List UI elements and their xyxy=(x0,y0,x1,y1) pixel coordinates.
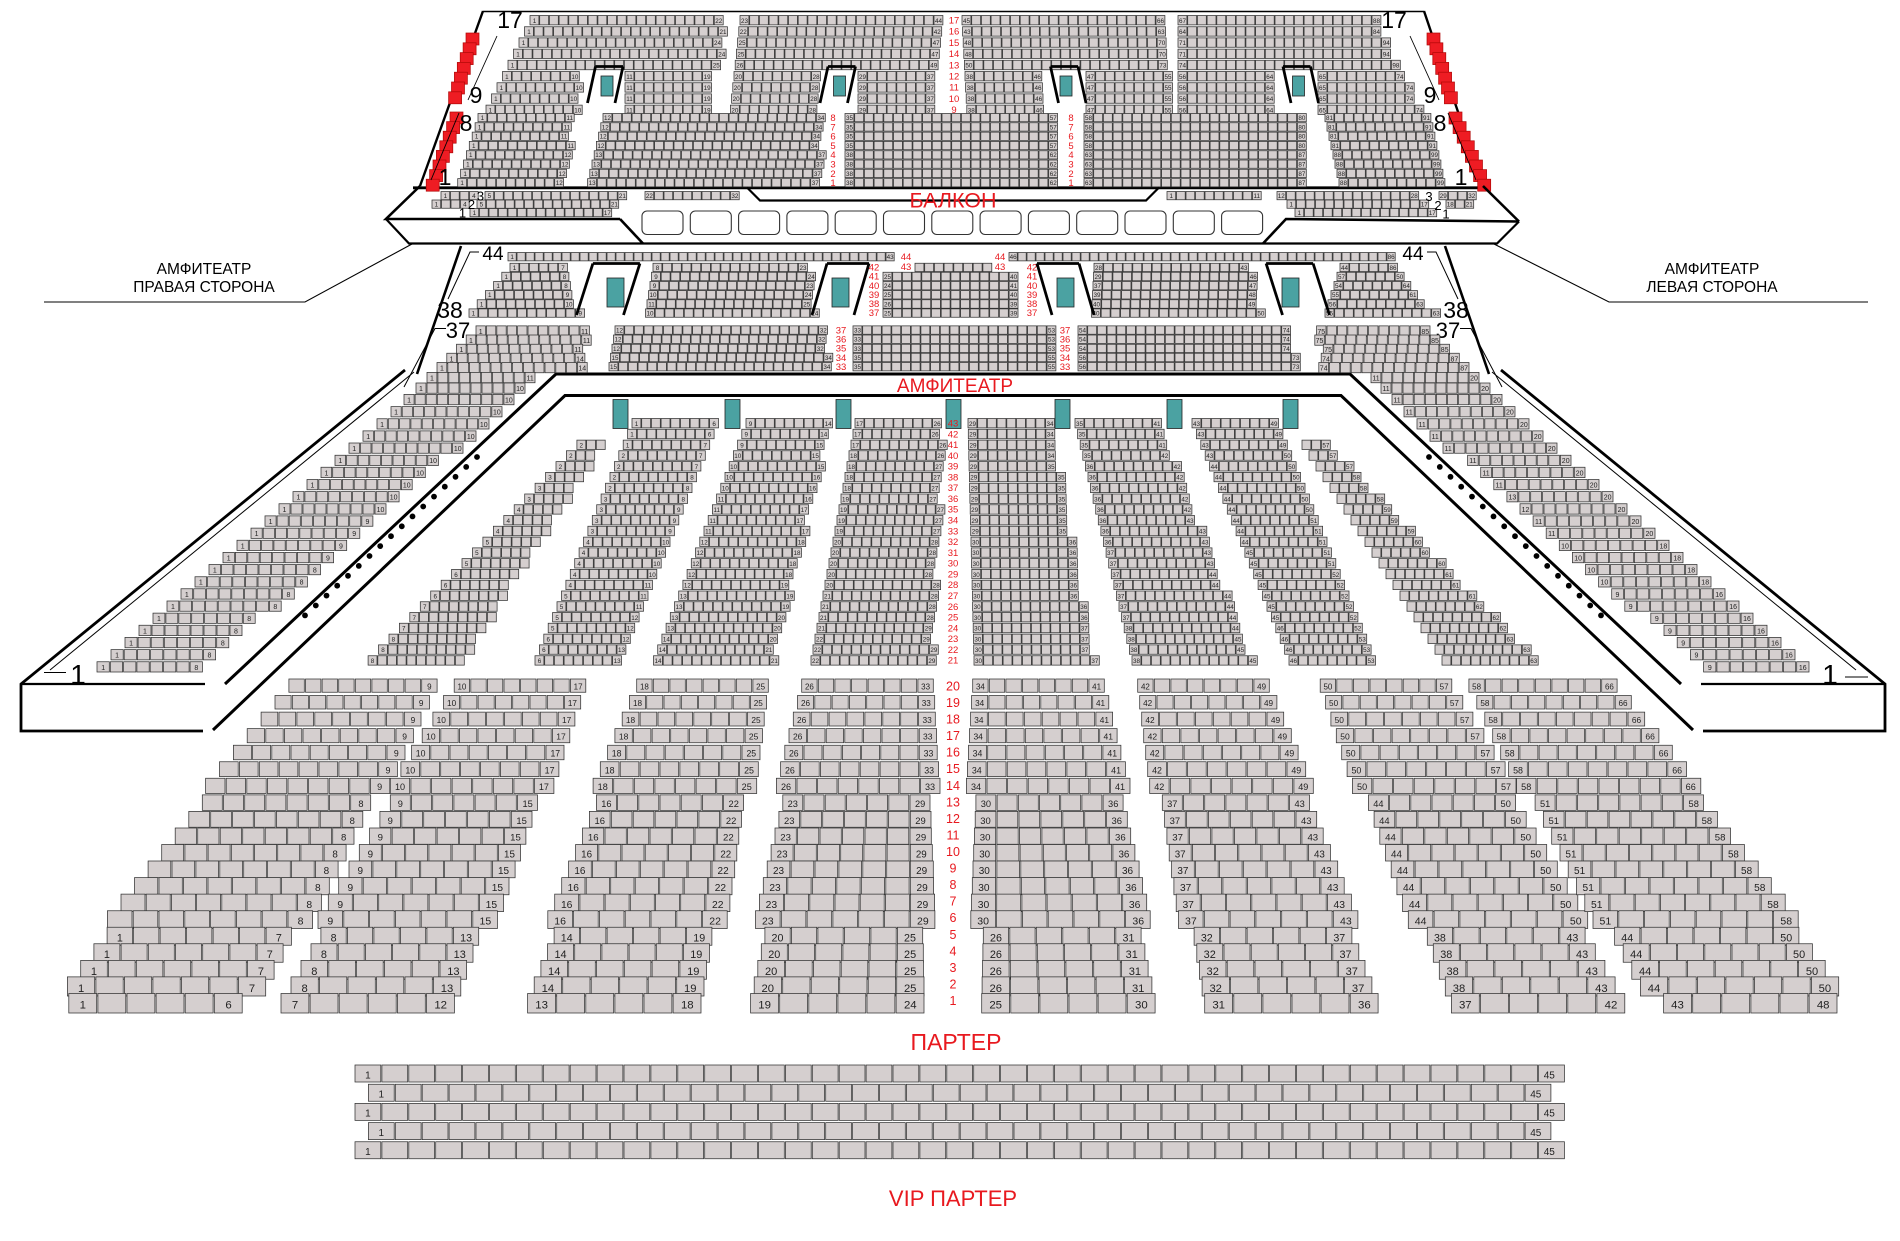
svg-text:41: 41 xyxy=(948,440,959,451)
svg-text:14: 14 xyxy=(825,421,833,428)
svg-text:9: 9 xyxy=(398,799,403,809)
svg-text:33: 33 xyxy=(923,732,933,742)
svg-text:29: 29 xyxy=(859,85,867,92)
svg-text:44: 44 xyxy=(1341,265,1349,272)
svg-text:50: 50 xyxy=(1396,274,1404,281)
svg-text:20: 20 xyxy=(1618,507,1626,514)
svg-text:43: 43 xyxy=(1193,421,1201,428)
svg-text:33: 33 xyxy=(924,749,934,759)
svg-text:20: 20 xyxy=(1548,446,1556,453)
svg-text:12: 12 xyxy=(613,346,621,353)
svg-text:46: 46 xyxy=(1035,96,1043,103)
svg-text:36: 36 xyxy=(1122,866,1134,877)
svg-text:29: 29 xyxy=(972,529,980,536)
svg-text:13: 13 xyxy=(1509,495,1517,502)
svg-text:81: 81 xyxy=(1332,143,1340,150)
svg-text:42: 42 xyxy=(1605,1000,1618,1012)
svg-text:60: 60 xyxy=(1438,561,1446,568)
svg-text:9: 9 xyxy=(377,782,382,792)
svg-text:37: 37 xyxy=(1333,932,1345,944)
svg-text:14: 14 xyxy=(542,983,555,995)
svg-text:53: 53 xyxy=(1367,658,1375,665)
svg-text:11: 11 xyxy=(1419,422,1426,429)
svg-text:37: 37 xyxy=(1167,799,1177,809)
svg-text:16: 16 xyxy=(805,496,813,503)
svg-text:91: 91 xyxy=(1423,115,1431,122)
svg-text:75: 75 xyxy=(1316,338,1324,345)
svg-text:34: 34 xyxy=(817,115,825,122)
svg-text:9: 9 xyxy=(386,765,391,775)
svg-text:43: 43 xyxy=(1301,815,1311,826)
svg-text:45: 45 xyxy=(1272,615,1280,622)
svg-text:53: 53 xyxy=(1048,337,1056,344)
svg-text:64: 64 xyxy=(1403,283,1411,290)
svg-text:25: 25 xyxy=(737,51,745,58)
svg-text:41: 41 xyxy=(1115,782,1125,792)
svg-text:43: 43 xyxy=(901,262,912,273)
svg-text:15: 15 xyxy=(611,355,619,362)
svg-text:50: 50 xyxy=(1501,799,1511,809)
svg-text:9: 9 xyxy=(347,883,353,894)
svg-text:6: 6 xyxy=(542,647,546,654)
svg-text:16: 16 xyxy=(581,849,592,860)
svg-text:52: 52 xyxy=(1354,626,1362,633)
svg-text:15: 15 xyxy=(946,762,960,776)
svg-text:11: 11 xyxy=(636,604,643,611)
svg-text:11: 11 xyxy=(1254,193,1261,200)
svg-text:30: 30 xyxy=(975,647,983,654)
svg-text:51: 51 xyxy=(1540,799,1550,809)
svg-text:42: 42 xyxy=(1161,453,1169,460)
svg-text:10: 10 xyxy=(730,464,738,471)
svg-text:17: 17 xyxy=(556,732,566,742)
svg-text:16: 16 xyxy=(554,916,566,928)
svg-text:51: 51 xyxy=(1315,529,1323,536)
svg-text:11: 11 xyxy=(561,134,568,141)
svg-text:9: 9 xyxy=(326,555,330,562)
svg-text:1: 1 xyxy=(430,375,434,382)
svg-text:43: 43 xyxy=(1327,883,1339,894)
svg-text:53: 53 xyxy=(1363,647,1371,654)
svg-text:38: 38 xyxy=(1453,983,1466,995)
svg-text:37: 37 xyxy=(948,483,959,494)
svg-text:34: 34 xyxy=(948,516,959,527)
svg-text:32: 32 xyxy=(948,537,959,548)
svg-text:3: 3 xyxy=(591,529,595,536)
svg-text:43: 43 xyxy=(995,262,1006,273)
svg-text:88: 88 xyxy=(1338,171,1346,178)
svg-text:57: 57 xyxy=(1481,749,1491,759)
svg-text:29: 29 xyxy=(971,518,979,525)
svg-text:25: 25 xyxy=(904,949,916,961)
svg-text:43: 43 xyxy=(1199,529,1207,536)
svg-text:46: 46 xyxy=(1285,647,1293,654)
svg-text:23: 23 xyxy=(766,900,778,911)
svg-text:29: 29 xyxy=(916,833,927,844)
svg-text:27: 27 xyxy=(929,496,937,503)
svg-text:36: 36 xyxy=(1108,799,1118,809)
svg-text:24: 24 xyxy=(805,292,813,299)
svg-text:42: 42 xyxy=(1141,682,1150,691)
svg-text:28: 28 xyxy=(927,615,935,622)
svg-text:1: 1 xyxy=(78,983,84,995)
svg-text:22: 22 xyxy=(715,883,727,894)
svg-text:44: 44 xyxy=(1209,572,1217,579)
svg-text:14: 14 xyxy=(654,658,662,665)
svg-text:38: 38 xyxy=(1133,658,1141,665)
svg-text:31: 31 xyxy=(1129,966,1141,978)
svg-text:37: 37 xyxy=(1177,866,1189,877)
svg-text:37: 37 xyxy=(927,74,935,81)
svg-text:10: 10 xyxy=(946,845,960,859)
svg-text:46: 46 xyxy=(1034,74,1042,81)
svg-text:20: 20 xyxy=(1506,410,1514,417)
svg-text:АМФИТЕАТР: АМФИТЕАТР xyxy=(1665,261,1760,278)
svg-text:17: 17 xyxy=(574,682,583,691)
svg-text:25: 25 xyxy=(756,682,765,691)
svg-text:11: 11 xyxy=(640,593,647,600)
svg-text:14: 14 xyxy=(548,966,560,978)
svg-text:37: 37 xyxy=(1459,1000,1472,1012)
svg-text:30: 30 xyxy=(948,559,959,570)
svg-text:1: 1 xyxy=(310,483,314,490)
svg-text:42: 42 xyxy=(948,429,959,440)
svg-text:37: 37 xyxy=(1346,966,1358,978)
svg-text:43: 43 xyxy=(887,254,895,261)
svg-text:16: 16 xyxy=(1799,665,1807,672)
svg-text:73: 73 xyxy=(1292,355,1300,362)
svg-text:32: 32 xyxy=(1207,966,1219,978)
svg-text:22: 22 xyxy=(729,799,739,809)
svg-text:1: 1 xyxy=(488,292,492,299)
svg-text:27: 27 xyxy=(933,475,941,482)
svg-text:59: 59 xyxy=(1391,518,1399,525)
svg-text:16: 16 xyxy=(595,815,605,826)
svg-text:34: 34 xyxy=(974,715,984,725)
svg-text:25: 25 xyxy=(749,732,759,742)
svg-text:5: 5 xyxy=(551,626,555,633)
svg-text:1: 1 xyxy=(296,495,300,502)
svg-text:39: 39 xyxy=(1093,292,1101,299)
svg-text:34: 34 xyxy=(825,355,833,362)
svg-text:2: 2 xyxy=(608,486,612,493)
svg-text:14: 14 xyxy=(578,366,586,373)
svg-text:37: 37 xyxy=(1120,604,1128,611)
svg-text:5: 5 xyxy=(475,550,479,557)
svg-text:50: 50 xyxy=(1329,699,1339,708)
svg-text:9: 9 xyxy=(1668,628,1672,635)
svg-text:1: 1 xyxy=(533,18,537,25)
svg-text:1: 1 xyxy=(185,592,189,599)
svg-text:15: 15 xyxy=(949,38,960,49)
svg-text:22: 22 xyxy=(816,636,824,643)
svg-text:35: 35 xyxy=(1059,518,1067,525)
svg-text:63: 63 xyxy=(1085,152,1093,159)
svg-text:58: 58 xyxy=(1505,749,1515,759)
svg-text:21: 21 xyxy=(771,658,779,665)
svg-text:8: 8 xyxy=(247,616,251,623)
svg-text:10: 10 xyxy=(480,422,488,429)
svg-text:10: 10 xyxy=(467,434,475,441)
svg-text:55: 55 xyxy=(1164,74,1172,81)
svg-text:25: 25 xyxy=(746,749,756,759)
svg-text:1: 1 xyxy=(1068,178,1073,189)
svg-text:34: 34 xyxy=(971,782,981,792)
svg-text:42: 42 xyxy=(1154,782,1164,792)
svg-text:35: 35 xyxy=(1081,442,1089,449)
svg-text:21: 21 xyxy=(719,29,727,36)
svg-text:30: 30 xyxy=(978,900,990,911)
svg-text:3: 3 xyxy=(950,961,957,975)
svg-text:30: 30 xyxy=(972,550,980,557)
svg-text:53: 53 xyxy=(1048,328,1056,335)
svg-text:11: 11 xyxy=(626,96,633,103)
svg-text:71: 71 xyxy=(1179,51,1187,58)
svg-text:22: 22 xyxy=(709,916,721,928)
svg-text:52: 52 xyxy=(1350,615,1358,622)
svg-text:50: 50 xyxy=(1323,682,1332,691)
svg-text:49: 49 xyxy=(1257,682,1266,691)
svg-text:9: 9 xyxy=(427,682,432,691)
svg-text:47: 47 xyxy=(931,51,939,58)
svg-text:1: 1 xyxy=(70,659,86,690)
svg-text:30: 30 xyxy=(972,561,980,568)
svg-text:44: 44 xyxy=(1224,593,1232,600)
svg-text:18: 18 xyxy=(598,782,608,792)
svg-text:38: 38 xyxy=(846,152,854,159)
svg-text:50: 50 xyxy=(1510,815,1520,826)
svg-text:39: 39 xyxy=(1010,301,1018,308)
svg-text:99: 99 xyxy=(1433,162,1441,169)
svg-text:37: 37 xyxy=(1180,883,1192,894)
svg-text:9: 9 xyxy=(352,531,356,538)
svg-text:22: 22 xyxy=(712,900,724,911)
svg-text:45: 45 xyxy=(1530,1128,1542,1139)
svg-text:33: 33 xyxy=(854,337,862,344)
svg-text:12: 12 xyxy=(561,162,569,169)
svg-text:64: 64 xyxy=(1266,74,1274,81)
svg-text:32: 32 xyxy=(817,346,825,353)
svg-text:37: 37 xyxy=(1339,949,1351,961)
svg-text:87: 87 xyxy=(1298,152,1306,159)
svg-text:16: 16 xyxy=(601,799,611,809)
svg-text:29: 29 xyxy=(969,432,977,439)
svg-text:66: 66 xyxy=(1605,682,1614,691)
svg-text:23: 23 xyxy=(780,833,791,844)
svg-text:73: 73 xyxy=(1292,364,1300,371)
svg-text:80: 80 xyxy=(1298,134,1306,141)
svg-text:17: 17 xyxy=(856,421,864,428)
svg-text:50: 50 xyxy=(1806,966,1818,978)
svg-text:63: 63 xyxy=(1523,647,1531,654)
svg-text:24: 24 xyxy=(884,283,892,290)
svg-text:58: 58 xyxy=(1085,115,1093,122)
svg-text:56: 56 xyxy=(1079,364,1087,371)
svg-text:88: 88 xyxy=(1373,18,1381,25)
svg-text:80: 80 xyxy=(1298,124,1306,131)
svg-text:63: 63 xyxy=(1085,171,1093,178)
svg-text:26: 26 xyxy=(789,749,799,759)
svg-text:17: 17 xyxy=(852,442,860,449)
svg-text:57: 57 xyxy=(1329,453,1337,460)
svg-text:58: 58 xyxy=(1488,715,1498,725)
svg-text:13: 13 xyxy=(591,171,599,178)
svg-text:3: 3 xyxy=(599,507,603,514)
svg-text:25: 25 xyxy=(713,63,721,70)
svg-text:49: 49 xyxy=(1271,715,1281,725)
svg-text:38: 38 xyxy=(1440,949,1452,961)
svg-text:50: 50 xyxy=(1335,715,1345,725)
svg-text:18: 18 xyxy=(789,561,797,568)
svg-text:56: 56 xyxy=(1179,85,1187,92)
svg-text:29: 29 xyxy=(915,815,925,826)
svg-text:26: 26 xyxy=(793,732,803,742)
svg-text:43: 43 xyxy=(1207,561,1215,568)
svg-text:20: 20 xyxy=(834,539,842,546)
svg-text:45: 45 xyxy=(1237,647,1245,654)
svg-text:35: 35 xyxy=(948,505,959,516)
svg-text:24: 24 xyxy=(904,1000,917,1012)
svg-text:42: 42 xyxy=(1143,699,1153,708)
svg-text:36: 36 xyxy=(1097,507,1105,514)
svg-text:10: 10 xyxy=(574,107,582,114)
svg-text:19: 19 xyxy=(687,966,699,978)
svg-text:37: 37 xyxy=(816,162,824,169)
svg-text:44: 44 xyxy=(1241,539,1249,546)
svg-text:44: 44 xyxy=(1621,932,1633,944)
svg-text:8: 8 xyxy=(350,815,355,826)
svg-text:40: 40 xyxy=(1093,301,1101,308)
svg-text:37: 37 xyxy=(1091,658,1099,665)
svg-text:1: 1 xyxy=(626,442,630,449)
svg-text:74: 74 xyxy=(1406,96,1414,103)
svg-text:25: 25 xyxy=(904,983,917,995)
svg-text:17: 17 xyxy=(545,765,555,775)
svg-text:21: 21 xyxy=(818,626,826,633)
svg-text:1: 1 xyxy=(527,29,531,36)
svg-text:1: 1 xyxy=(213,568,217,575)
svg-text:9: 9 xyxy=(337,900,343,911)
svg-text:30: 30 xyxy=(980,815,990,826)
svg-text:57: 57 xyxy=(1050,134,1058,141)
svg-text:50: 50 xyxy=(1288,464,1296,471)
svg-text:9: 9 xyxy=(653,283,657,290)
svg-text:47: 47 xyxy=(1249,283,1257,290)
svg-text:22: 22 xyxy=(646,193,654,200)
svg-text:23: 23 xyxy=(773,866,785,877)
svg-text:26: 26 xyxy=(736,63,744,70)
svg-text:94: 94 xyxy=(1383,51,1391,58)
svg-text:12: 12 xyxy=(631,615,639,622)
svg-text:1: 1 xyxy=(504,274,508,281)
svg-text:41: 41 xyxy=(1096,699,1106,708)
svg-text:20: 20 xyxy=(1590,483,1598,490)
svg-text:62: 62 xyxy=(1476,604,1484,611)
svg-text:17: 17 xyxy=(604,210,612,217)
svg-text:26: 26 xyxy=(797,715,807,725)
svg-text:50: 50 xyxy=(1530,849,1541,860)
svg-text:34: 34 xyxy=(1047,442,1055,449)
svg-text:45: 45 xyxy=(963,18,971,25)
svg-text:7: 7 xyxy=(267,949,273,961)
svg-text:37: 37 xyxy=(1094,283,1102,290)
svg-text:1: 1 xyxy=(440,366,444,373)
svg-text:35: 35 xyxy=(1058,507,1066,514)
svg-text:10: 10 xyxy=(662,539,670,546)
svg-text:2: 2 xyxy=(613,475,617,482)
svg-text:2: 2 xyxy=(569,453,573,460)
svg-text:1: 1 xyxy=(365,1070,371,1081)
svg-text:7: 7 xyxy=(292,1000,298,1012)
svg-text:36: 36 xyxy=(1132,916,1144,928)
svg-text:11: 11 xyxy=(1382,386,1389,393)
svg-text:44: 44 xyxy=(1397,866,1409,877)
svg-text:15: 15 xyxy=(498,866,510,877)
svg-text:18: 18 xyxy=(605,765,615,775)
svg-text:23: 23 xyxy=(777,849,788,860)
svg-text:63: 63 xyxy=(1158,29,1166,36)
svg-text:8: 8 xyxy=(381,647,385,654)
svg-text:38: 38 xyxy=(846,171,854,178)
svg-text:22: 22 xyxy=(726,815,736,826)
svg-text:7: 7 xyxy=(258,966,264,978)
svg-text:37: 37 xyxy=(1182,900,1194,911)
svg-text:12: 12 xyxy=(614,337,622,344)
svg-text:12: 12 xyxy=(597,143,605,150)
svg-text:34: 34 xyxy=(973,749,983,759)
svg-text:58: 58 xyxy=(1521,782,1531,792)
svg-text:11: 11 xyxy=(1432,434,1439,441)
svg-text:30: 30 xyxy=(974,604,982,611)
svg-text:26: 26 xyxy=(934,421,942,428)
svg-text:88: 88 xyxy=(1336,162,1344,169)
svg-text:43: 43 xyxy=(1201,539,1209,546)
svg-text:29: 29 xyxy=(916,866,928,877)
svg-text:13: 13 xyxy=(614,658,622,665)
svg-text:64: 64 xyxy=(1266,96,1274,103)
svg-text:12: 12 xyxy=(1278,193,1286,200)
svg-text:43: 43 xyxy=(1586,966,1598,978)
svg-text:13: 13 xyxy=(675,604,683,611)
svg-text:16: 16 xyxy=(1757,628,1765,635)
svg-text:20: 20 xyxy=(832,550,840,557)
svg-text:50: 50 xyxy=(965,63,973,70)
svg-text:1: 1 xyxy=(463,171,467,178)
svg-text:43: 43 xyxy=(1307,833,1318,844)
svg-text:20: 20 xyxy=(1520,422,1528,429)
svg-text:35: 35 xyxy=(846,124,854,131)
svg-text:8: 8 xyxy=(324,866,330,877)
svg-text:40: 40 xyxy=(1010,292,1018,299)
svg-text:58: 58 xyxy=(1497,732,1507,742)
svg-text:5: 5 xyxy=(564,593,568,600)
svg-text:4: 4 xyxy=(577,561,581,568)
svg-text:18: 18 xyxy=(612,749,622,759)
svg-text:8: 8 xyxy=(208,653,212,660)
svg-text:61: 61 xyxy=(1445,572,1453,579)
svg-text:9: 9 xyxy=(339,543,343,550)
svg-text:20: 20 xyxy=(772,932,784,944)
svg-text:60: 60 xyxy=(1414,539,1422,546)
svg-text:2: 2 xyxy=(580,442,584,449)
svg-text:1: 1 xyxy=(511,63,515,70)
svg-text:44: 44 xyxy=(1228,507,1236,514)
svg-text:34: 34 xyxy=(811,143,819,150)
svg-text:66: 66 xyxy=(1618,699,1628,708)
svg-text:19: 19 xyxy=(946,696,960,710)
svg-text:29: 29 xyxy=(916,883,928,894)
svg-text:1: 1 xyxy=(439,164,452,190)
